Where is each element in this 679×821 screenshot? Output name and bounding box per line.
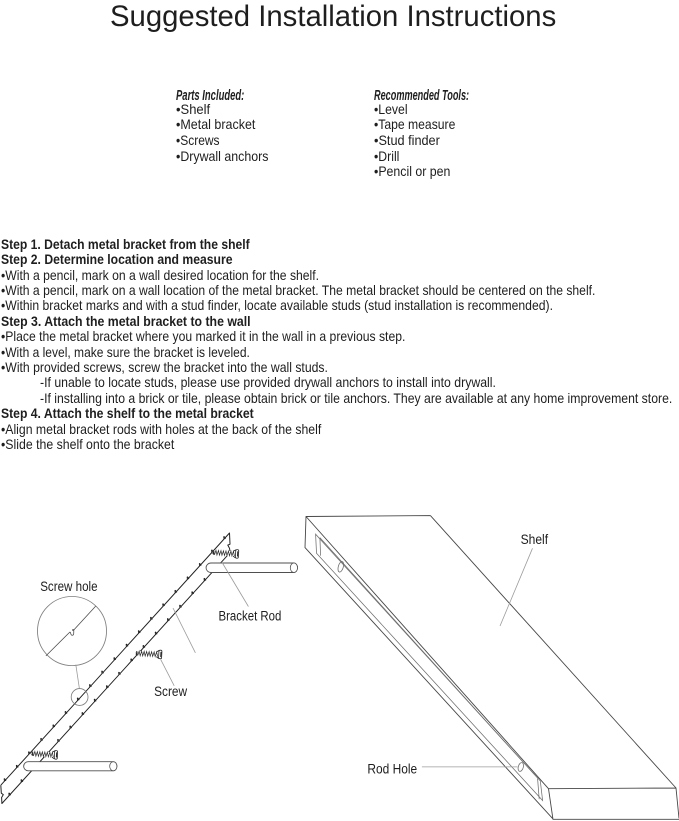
svg-text:Bracket Rod: Bracket Rod — [219, 608, 282, 623]
svg-text:Shelf: Shelf — [521, 532, 549, 547]
svg-text:Screw hole: Screw hole — [40, 579, 97, 594]
svg-text:Screw: Screw — [154, 684, 187, 699]
svg-text:Rod Hole: Rod Hole — [367, 761, 417, 776]
